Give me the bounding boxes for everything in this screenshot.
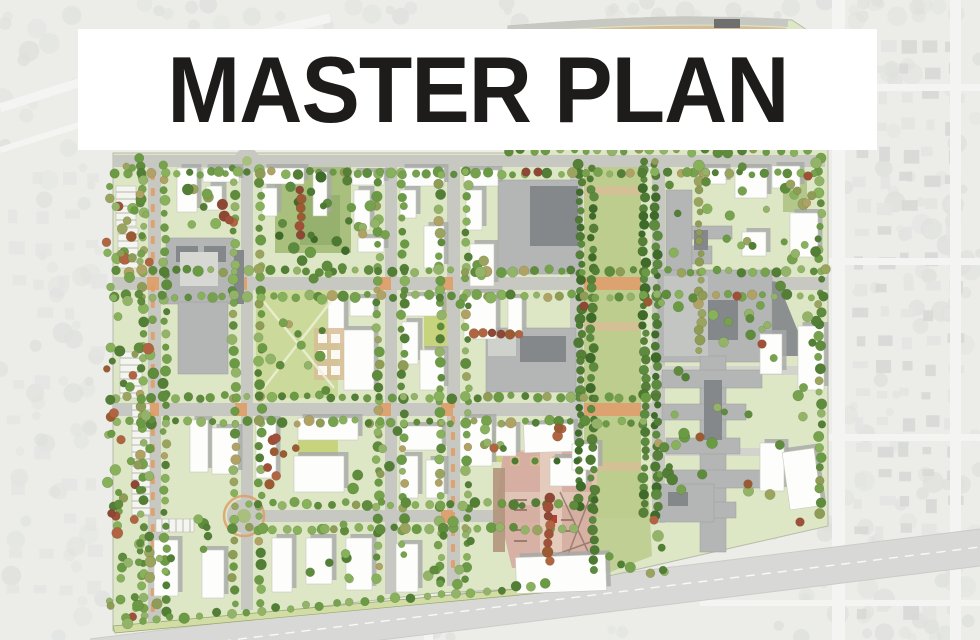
master-plan-slide: MASTER PLAN <box>0 0 980 640</box>
title-banner: MASTER PLAN <box>78 29 877 150</box>
page-title: MASTER PLAN <box>167 36 788 144</box>
